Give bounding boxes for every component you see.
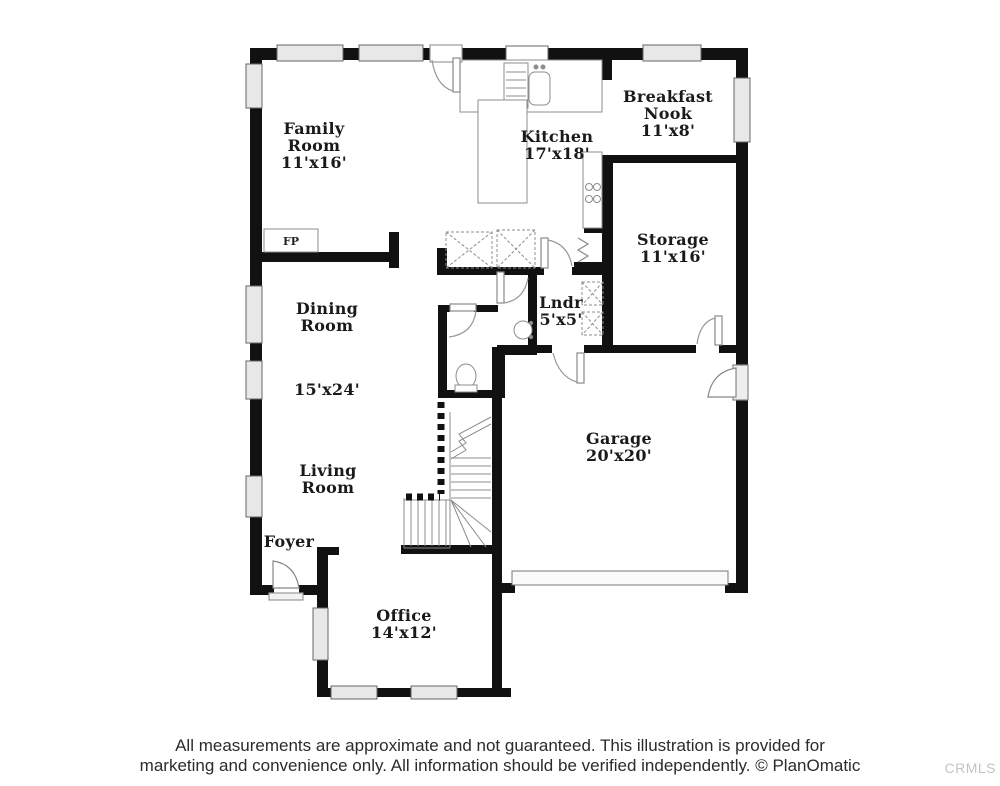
pass-through-window [506, 46, 548, 60]
window [734, 78, 750, 142]
room-name: Breakfast Nook [623, 87, 713, 123]
toilet-tank [455, 385, 477, 392]
window [331, 686, 377, 699]
room-label-foyer: Foyer [244, 533, 334, 550]
disclaimer: All measurements are approximate and not… [0, 736, 1000, 776]
room-dims: 11'x16' [628, 248, 718, 265]
stair-railing [406, 402, 441, 497]
fireplace-label: FP [264, 231, 318, 252]
door-garage-storage [697, 316, 722, 345]
garage-door [512, 571, 728, 585]
room-dims: 17'x18' [512, 145, 602, 162]
window [313, 608, 328, 660]
toilet [456, 364, 476, 388]
room-dims: 20'x20' [574, 447, 664, 464]
burner [586, 184, 593, 191]
room-label-dining-room: Dining Room [282, 300, 372, 334]
burner [594, 196, 601, 203]
window [246, 64, 262, 108]
door-kitchen-exterior [430, 45, 462, 92]
disclaimer-line-1: All measurements are approximate and not… [0, 736, 1000, 756]
room-name: Foyer [264, 532, 315, 551]
floor-plan-drawing [0, 0, 1000, 786]
window [359, 45, 423, 61]
room-dims: 11'x8' [613, 122, 723, 139]
door-powder-room [449, 304, 476, 337]
window [643, 45, 701, 61]
disclaimer-line-2: marketing and convenience only. All info… [0, 756, 1000, 776]
room-label-storage: Storage 11'x16' [628, 231, 718, 265]
window [411, 686, 457, 699]
window [246, 286, 262, 343]
window [246, 361, 262, 399]
room-label-family-room: Family Room 11'x16' [269, 120, 359, 171]
closet-box [446, 232, 492, 268]
door-foyer-entry [269, 561, 303, 600]
room-dims: 5'x5' [516, 311, 606, 328]
accordion-door [578, 238, 588, 262]
door-laundry-upper [541, 238, 572, 268]
room-label-garage: Garage 20'x20' [574, 430, 664, 464]
room-dims-dining-room: 15'x24' [282, 381, 372, 398]
room-name: Dining Room [296, 299, 358, 335]
room-dims: 11'x16' [269, 154, 359, 171]
room-name: Living Room [299, 461, 356, 497]
room-dims: 15'x24' [294, 380, 360, 399]
room-label-breakfast-nook: Breakfast Nook 11'x8' [613, 88, 723, 139]
stair-break-line [451, 424, 491, 459]
door-garage-side [708, 365, 748, 400]
closet-box [497, 230, 535, 268]
room-label-kitchen: Kitchen 17'x18' [512, 128, 602, 162]
window [246, 476, 262, 517]
room-label-laundry: Lndr 5'x5' [516, 294, 606, 328]
stairs [404, 412, 491, 548]
window [277, 45, 343, 61]
burner [586, 196, 593, 203]
burner [594, 184, 601, 191]
room-dims: 14'x12' [359, 624, 449, 641]
floor-plan-page: Family Room 11'x16' Kitchen 17'x18' Brea… [0, 0, 1000, 786]
door-laundry-garage [553, 353, 584, 383]
kitchen-sink [529, 72, 550, 105]
room-label-living-room: Living Room [283, 462, 373, 496]
crmls-watermark: CRMLS [938, 760, 996, 776]
room-name: Family Room [283, 119, 344, 155]
room-label-office: Office 14'x12' [359, 607, 449, 641]
